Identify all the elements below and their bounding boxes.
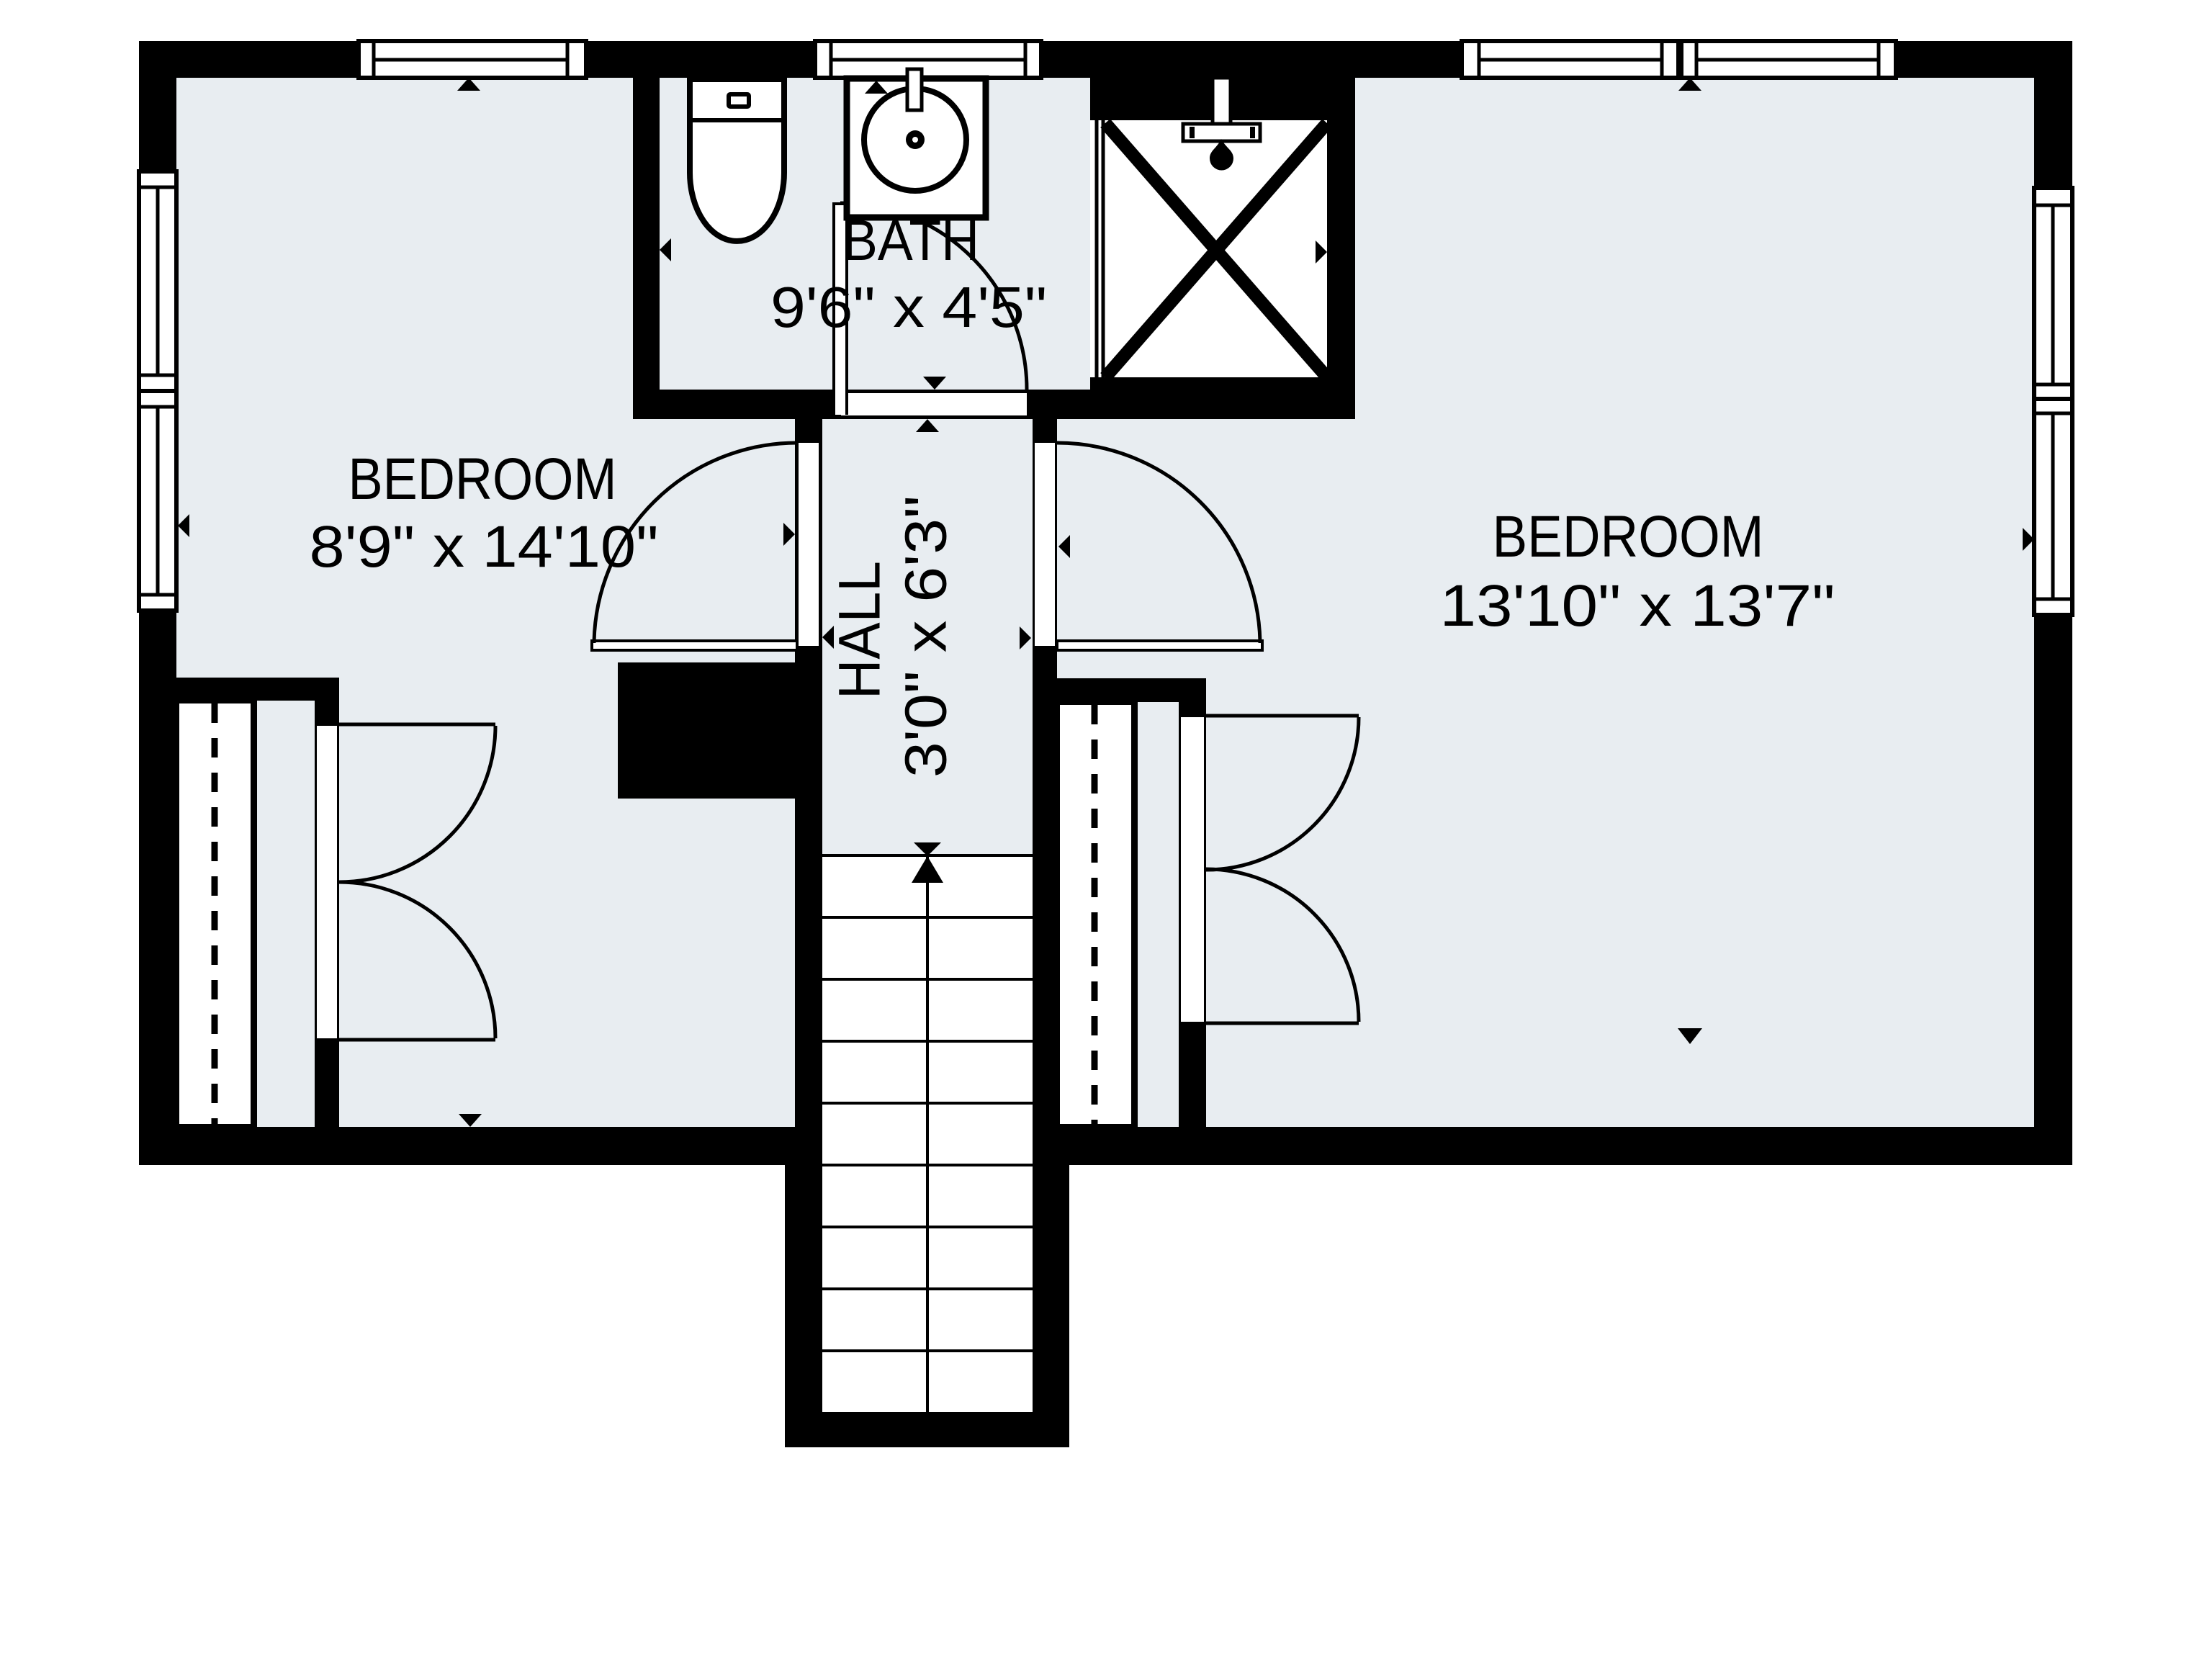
svg-text:3'0" x 6'3": 3'0" x 6'3" [894,495,959,778]
svg-text:BATH: BATH [842,208,979,272]
svg-text:BEDROOM: BEDROOM [349,446,617,512]
svg-text:13'10" x 13'7": 13'10" x 13'7" [1440,573,1835,639]
svg-text:9'6" x 4'5": 9'6" x 4'5" [770,275,1047,339]
svg-text:8'9" x 14'10": 8'9" x 14'10" [310,514,659,580]
svg-text:HALL: HALL [827,561,893,699]
svg-text:BEDROOM: BEDROOM [1493,504,1764,570]
